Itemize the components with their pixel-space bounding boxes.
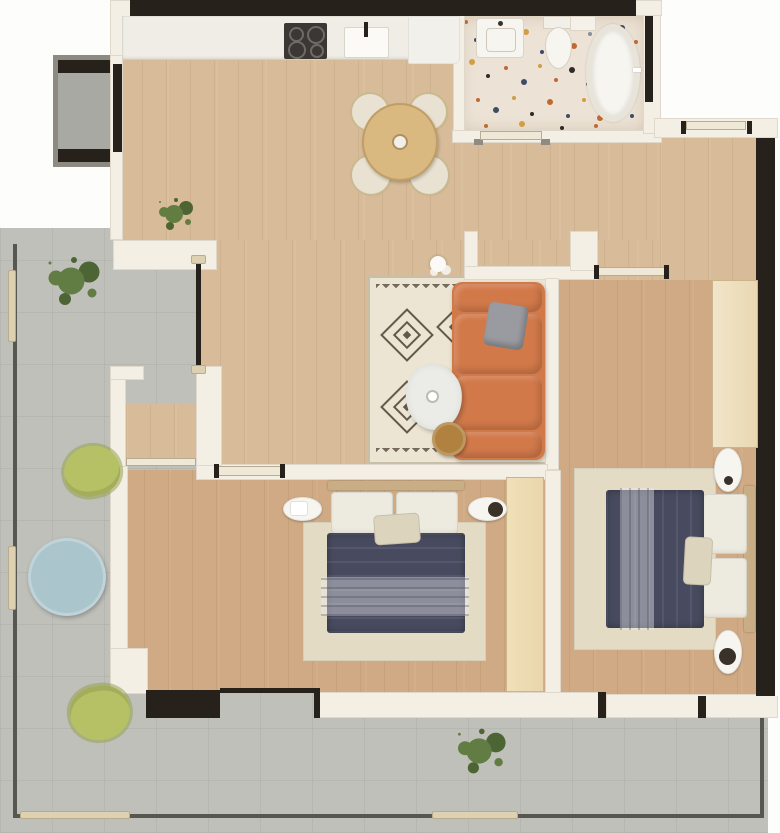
terrace-railing-right [760,706,764,818]
accent-pillow [373,512,421,545]
railing-post [8,270,16,342]
railing-post [432,811,518,819]
wall-top-right-pillar [634,0,662,16]
table-centerpiece [394,136,406,148]
nightstand-lamp [290,501,308,516]
wall-bedroom-left-south [318,692,600,718]
railing-post [20,811,130,819]
nightstand-sphere [719,648,736,665]
kitchen-plant [165,205,183,223]
window-strip-east [756,138,775,696]
terrace-plant-bottom [466,738,491,763]
cooktop-burner [288,41,306,59]
bedroom-left-wardrobe [506,477,544,692]
entry-threshold [126,458,196,466]
balcony-small-window-top [58,60,118,73]
cooktop-burner [307,26,325,44]
basin-faucet [498,21,503,26]
hallway-east-floor [660,120,757,280]
bathroom-door-sill [480,131,542,140]
outside-east-rim [775,138,780,696]
cooktop-burner [310,44,324,58]
window-kitchen-west [113,64,122,152]
bedroom-right-nightstand [714,448,742,492]
ceiling-light [541,139,550,145]
door-jamb [314,690,320,718]
rug-diamond-motif [380,308,434,362]
wall-bedroom-divider [545,470,561,694]
railing-post [8,546,16,610]
floor-plan-scene [0,0,780,833]
door-jamb [280,464,285,478]
wall-living-east [545,278,559,470]
window-strip-top [130,0,636,16]
door-jamb [681,121,686,134]
balcony-small-window-bottom [58,149,118,162]
door-jamb [664,265,669,279]
accent-pillow [683,536,713,585]
sofa-cushion [454,376,542,430]
glass-door-living-west [196,262,201,368]
bedroom-right-throw [620,488,654,630]
bedroom-left-headboard [328,481,464,490]
wall-bedroom-left-corner [110,648,148,694]
wall-bedroom-left-west [110,466,128,666]
glass-door-sill [191,365,206,374]
nightstand-sphere [488,502,503,517]
glass-track-bedroom-left [220,688,320,693]
kitchen-faucet [364,22,368,37]
door-jamb [598,692,606,718]
cooktop [284,23,327,59]
cooktop-burner [289,27,304,42]
bedroom-right-wardrobe [712,280,758,448]
door-jamb [214,464,219,478]
door-jamb [747,121,752,134]
sofa-cushion [454,432,542,458]
entry-deck-mat [126,404,196,460]
wall-entry-stub [110,366,144,380]
wall-bedroom-right-south [606,694,778,718]
basin-bowl [486,28,516,52]
door-jamb [594,265,599,279]
terrace-plant-top [58,268,85,295]
glass-door-sill [191,255,206,264]
side-table-round [432,422,466,456]
nightstand-lamp [724,476,733,485]
sliding-door-bedroom-left [146,690,220,718]
bedroom-left-throw [321,577,469,616]
door-leaf-bedroom-left [218,466,282,476]
entry-door-sill [686,121,746,130]
bathtub-faucet [633,68,641,72]
window-bathroom-east [645,16,653,102]
terrace-table-blue [28,538,106,616]
door-jamb [698,696,706,718]
sofa-throw-pillow [483,301,529,351]
kitchen-cabinet [408,16,460,64]
bathroom-shelf [570,16,596,31]
bathtub [586,24,640,122]
door-leaf-bedroom-right [598,267,666,276]
white-vase [430,256,446,272]
bathroom-washbasin [476,18,524,58]
wall-entry-east [196,366,222,466]
corner-sofa [452,282,545,460]
coffee-table-candle [428,392,437,401]
